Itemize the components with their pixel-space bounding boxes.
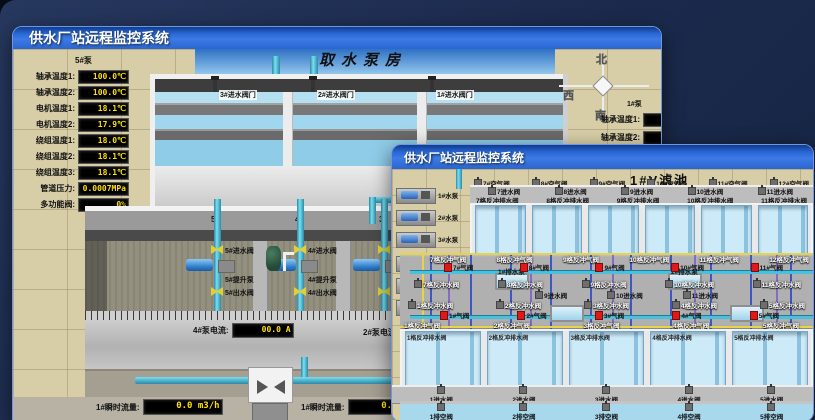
valve-icon: [555, 187, 563, 195]
led-display: 18.1℃: [78, 166, 129, 180]
valve-label: 9#气阀: [604, 262, 624, 272]
valve-icon: [437, 386, 445, 394]
backwash-pump-unit[interactable]: 2#水泵: [396, 207, 474, 225]
telemetry-label: 多功能阀:: [23, 199, 75, 210]
valve-label: 10进水阀: [616, 290, 643, 300]
pump-motor-icon: [301, 260, 318, 273]
telemetry-label: 轴承温度1:: [588, 114, 640, 125]
bw-water-valve-item[interactable]: 10格反冲水阀: [665, 279, 714, 289]
valve-icon: [602, 386, 610, 394]
telemetry-label: 绕组温度3:: [23, 167, 75, 178]
valve-label: 7#气阀: [453, 262, 473, 272]
bw-water-valve-item[interactable]: 3格反冲水阀: [584, 300, 629, 310]
bw-water-valve-item[interactable]: 8格反冲水阀: [498, 279, 543, 289]
drain-valve-label: 4格反冲排水阀: [652, 333, 691, 342]
led-display: 18.0℃: [78, 134, 129, 148]
valve-icon: [496, 301, 504, 309]
intake-valve-label: 2#进水阀门: [317, 90, 355, 100]
telemetry-label: 轴承温度2:: [23, 87, 75, 98]
telemetry-label: 绕组温度2:: [23, 151, 75, 162]
pump4-current-meter: 4#泵电流: 00.0 A: [193, 323, 294, 338]
mid-inlet-valve-item[interactable]: 11进水阀: [683, 290, 718, 300]
valve-label: 3排空阀: [595, 411, 618, 420]
red-valve-icon: [671, 263, 679, 272]
valve-label: 4排空阀: [678, 411, 701, 420]
valve-icon: [767, 386, 775, 394]
vent-valve-item[interactable]: 5排空阀: [760, 403, 783, 420]
valve-icon: [767, 403, 775, 411]
pipe-gallery: 1#排水泵 2#排水泵 7格反冲气阀 8格反冲气阀 9格反冲气阀 10格反冲气阀…: [400, 253, 813, 329]
valve-icon: [607, 291, 615, 299]
air-valve-item[interactable]: 1#气阀: [440, 310, 469, 320]
valve-icon: [760, 301, 768, 309]
filter-cell: 4格反冲排水阀: [650, 331, 726, 387]
lift-pump-label: 4#提升泵: [308, 275, 337, 285]
valve-icon: [408, 301, 416, 309]
valve-label: 3#气阀: [604, 310, 624, 320]
riser-pipe: [214, 199, 221, 317]
air-valve-item[interactable]: 11#气阀: [751, 262, 784, 272]
compass-north-label: 北: [596, 52, 607, 66]
valve-label: 7格反冲水阀: [423, 279, 459, 289]
filter-cell: 2格反冲排水阀: [487, 331, 563, 387]
led-display: 18.1℃: [78, 102, 129, 116]
machine-label: 1#水泵: [438, 190, 458, 200]
pump-motor-icon: [218, 260, 235, 273]
lift-pump-icon[interactable]: [353, 259, 380, 271]
outlet-valve-label: 4#出水阀: [308, 288, 337, 298]
mid-inlet-valve-item[interactable]: 10进水阀: [607, 290, 643, 300]
red-valve-icon: [595, 263, 603, 272]
bw-water-valve-item[interactable]: 1格反冲水阀: [408, 300, 453, 310]
filter-scene: 1#V滤池 7#空气阀 8#空气阀 9#空气阀 10#空气阀 11#空气阀 12…: [392, 169, 813, 420]
motor-icon: [401, 213, 418, 221]
front-window-titlebar[interactable]: 供水厂站远程监控系统: [392, 145, 813, 170]
back-window-titlebar[interactable]: 供水厂站远程监控系统: [13, 27, 661, 50]
valve-label: 9格反冲水阀: [591, 279, 627, 289]
bw-water-valve-item[interactable]: 4格反冲水阀: [672, 300, 717, 310]
valve-label: 10#气阀: [680, 262, 704, 272]
valve-label: 4#气阀: [681, 310, 701, 320]
valve-icon: [685, 386, 693, 394]
bw-water-valve-item[interactable]: 2格反冲水阀: [496, 300, 541, 310]
led-display: 00.0 A: [232, 323, 294, 338]
led-display: 17.9℃: [78, 118, 129, 132]
intake-valve-label: 1#进水阀门: [436, 90, 474, 100]
compass-west-label: 西: [563, 89, 574, 102]
mid-inlet-valve-item[interactable]: 9进水阀: [535, 290, 567, 300]
red-valve-icon: [672, 311, 680, 320]
air-valve-item[interactable]: 2#气阀: [517, 310, 546, 320]
valve-label: 4格反冲水阀: [681, 300, 717, 310]
air-valve-item[interactable]: 4#气阀: [672, 310, 701, 320]
valve-label: 3格反冲水阀: [593, 300, 629, 310]
valve-label: 5排空阀: [760, 411, 783, 420]
valve-stem-icon: [430, 79, 434, 92]
flow-meter-1: 1#瞬时流量: 0.0 m3/h: [96, 399, 223, 415]
filter-cell: 3格反冲排水阀: [569, 331, 645, 387]
scene-title: 取水泵房: [319, 49, 407, 70]
filter-cell: [758, 205, 809, 255]
vent-valve-item[interactable]: 1排空阀: [430, 403, 453, 420]
compass-rose: 北 西 南: [551, 49, 655, 121]
air-valve-item[interactable]: 10#气阀: [671, 262, 704, 272]
red-valve-icon: [750, 311, 758, 320]
vent-valve-item[interactable]: 2排空阀: [512, 403, 535, 420]
motor-icon: [401, 235, 418, 243]
backwash-pump-unit[interactable]: 3#水泵: [396, 229, 474, 247]
riser-pipe: [381, 199, 388, 317]
green-tank-icon: [266, 246, 281, 271]
bw-water-valve-item[interactable]: 11格反冲水阀: [753, 279, 801, 289]
valve-icon: [621, 187, 629, 195]
valve-stem-icon: [213, 79, 217, 92]
valve-base: [252, 403, 288, 420]
valve-label: 1#气阀: [449, 310, 469, 320]
valve-label: 11#气阀: [760, 262, 784, 272]
current-meter-label: 4#泵电流:: [193, 325, 229, 336]
machine-label: 2#水泵: [438, 212, 458, 222]
filter-cells-top: [470, 203, 813, 257]
red-valve-icon: [520, 263, 528, 272]
lift-pump-label: 5#提升泵: [225, 275, 254, 285]
red-valve-icon: [751, 263, 759, 272]
valve-label: 2排空阀: [512, 411, 535, 420]
bay3-overhead-pipe-leg: [369, 197, 376, 224]
filter-cells-bottom: 1格反冲排水阀 2格反冲排水阀 3格反冲排水阀 4格反冲排水阀 5格反冲排水阀: [400, 329, 813, 389]
valve-stem-icon: [311, 79, 315, 92]
drain-valve-label: 5格反冲排水阀: [734, 333, 773, 342]
valve-icon: [498, 280, 506, 288]
drain-valve-label: 2格反冲排水阀: [489, 333, 528, 342]
outlet-valve-label: 5#出水阀: [225, 288, 254, 298]
bay-divider-wall: [336, 241, 352, 311]
valve-icon: [519, 386, 527, 394]
valve-label: 8格反冲水阀: [507, 279, 543, 289]
pump5-heading: 5#泵: [75, 55, 92, 66]
filter-cell: 5格反冲排水阀: [732, 331, 808, 387]
valve-icon: [688, 187, 696, 195]
flow-valve-unit[interactable]: [246, 367, 293, 420]
valve-label: 10格反冲水阀: [674, 279, 714, 289]
window-v-filter: 供水厂站远程监控系统 1#V滤池 7#空气阀 8#空气阀 9#空气阀 10#空气…: [391, 144, 814, 420]
vent-valve-item[interactable]: 4排空阀: [678, 403, 701, 420]
valve-label: 1格反冲水阀: [417, 300, 453, 310]
machine-label: 3#水泵: [438, 234, 458, 244]
telemetry-label: 管道压力:: [23, 183, 75, 194]
valve-icon: [602, 403, 610, 411]
backwash-pump-unit[interactable]: 1#水泵: [396, 185, 474, 203]
lift-pump-icon[interactable]: [186, 259, 213, 271]
filter-cell: [588, 205, 639, 255]
bw-water-valve-item[interactable]: 9格反冲水阀: [582, 279, 627, 289]
filter-cell: [701, 205, 752, 255]
white-pipe-icon: [283, 252, 286, 271]
led-display: 100.0℃: [78, 86, 129, 100]
inlet-valve-label: 5#进水阀: [225, 246, 254, 256]
basin-divider: [283, 92, 292, 166]
led-display: 0.0 m3/h: [143, 399, 223, 415]
red-valve-icon: [595, 311, 603, 320]
red-valve-icon: [517, 311, 525, 320]
led-display: 18.1℃: [78, 150, 129, 164]
valve-icon: [437, 403, 445, 411]
bw-water-valve-item[interactable]: 5格反冲水阀: [760, 300, 805, 310]
led-display: [643, 131, 661, 145]
air-valve-item[interactable]: 8#气阀: [520, 262, 549, 272]
telemetry-label: 电机温度2:: [23, 119, 75, 130]
telemetry-label: 电机温度1:: [23, 103, 75, 114]
desktop-background: 供水厂站远程监控系统 取水泵房 5#泵 轴承温度1:100.0℃ 轴承温度2:1…: [0, 0, 815, 420]
intake-valve-label: 3#进水阀门: [219, 90, 257, 100]
valve-icon: [672, 301, 680, 309]
bw-water-valve-item[interactable]: 7格反冲水阀: [414, 279, 459, 289]
valve-label: 1排空阀: [430, 411, 453, 420]
valve-icon: [582, 280, 590, 288]
flow-meter-label: 1#瞬时流量:: [96, 402, 140, 413]
back-window-title: 供水厂站远程监控系统: [29, 28, 169, 48]
filter-cell: 1格反冲排水阀: [405, 331, 481, 387]
inlet-valve-label: 4#进水阀: [308, 246, 337, 256]
valve-label: 5#气阀: [759, 310, 779, 320]
filter-cell: [532, 205, 583, 255]
valve-icon: [488, 187, 496, 195]
valve-icon: [753, 280, 761, 288]
valve-icon: [519, 403, 527, 411]
valve-cabinet: [248, 367, 293, 403]
valve-icon: [584, 301, 592, 309]
pump1-heading: 1#泵: [627, 99, 642, 109]
drain-valve-label: 1格反冲排水阀: [407, 333, 446, 342]
valve-icon: [414, 280, 422, 288]
valve-icon: [758, 187, 766, 195]
motor-icon: [401, 191, 418, 199]
valve-icon: [535, 291, 543, 299]
flow-meter-label: 1#瞬时流量:: [301, 402, 345, 413]
air-valve-item[interactable]: 5#气阀: [750, 310, 779, 320]
valve-label: 5格反冲水阀: [769, 300, 805, 310]
filter-cell: [475, 205, 526, 255]
valve-label: 2格反冲水阀: [505, 300, 541, 310]
telemetry-label: 轴承温度2:: [588, 132, 640, 143]
red-valve-icon: [444, 263, 452, 272]
valve-label: 2#气阀: [526, 310, 546, 320]
led-display: 0.0007MPa: [78, 182, 129, 196]
valve-label: 8#气阀: [529, 262, 549, 272]
riser-pipe: [297, 199, 304, 317]
led-display: 100.0℃: [78, 70, 129, 84]
valve-icon: [685, 403, 693, 411]
filter-cell: [645, 205, 696, 255]
valve-icon: [665, 280, 673, 288]
drain-valve-label: 3格反冲排水阀: [571, 333, 610, 342]
air-valve-item[interactable]: 7#气阀: [444, 262, 473, 272]
air-valve-item[interactable]: 9#气阀: [595, 262, 624, 272]
air-valve-item[interactable]: 3#气阀: [595, 310, 624, 320]
valve-label: 11进水阀: [692, 290, 718, 300]
valve-bowtie-icon: [267, 380, 285, 394]
telemetry-label: 绕组温度1:: [23, 135, 75, 146]
valve-label: 9进水阀: [544, 290, 567, 300]
vent-valve-item[interactable]: 3排空阀: [595, 403, 618, 420]
telemetry-label: 轴承温度1:: [23, 71, 75, 82]
red-valve-icon: [440, 311, 448, 320]
led-display: [643, 113, 661, 127]
valve-label: 11格反冲水阀: [762, 279, 801, 289]
valve-icon: [683, 291, 691, 299]
front-window-title: 供水厂站远程监控系统: [404, 149, 524, 166]
